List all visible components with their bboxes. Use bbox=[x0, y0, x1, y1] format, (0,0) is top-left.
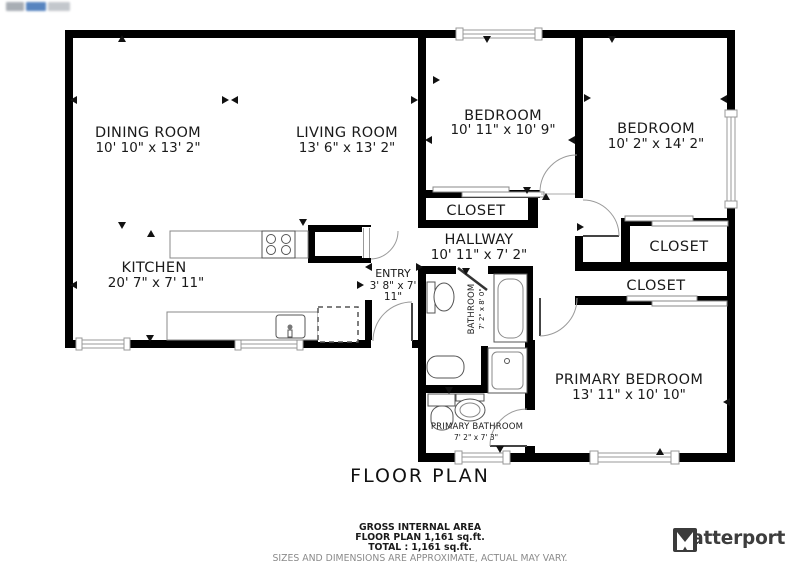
size-disclaimer: SIZES AND DIMENSIONS ARE APPROXIMATE, AC… bbox=[272, 554, 567, 564]
door-front-entry bbox=[373, 302, 412, 341]
door-pantry bbox=[371, 231, 398, 259]
wall-exterior-top bbox=[65, 30, 735, 38]
wall-bath-left bbox=[418, 266, 426, 340]
appliance-dashed bbox=[318, 307, 358, 342]
wall-shower-left bbox=[481, 346, 488, 393]
primary-bedroom-label: PRIMARY BEDROOM bbox=[555, 372, 703, 388]
wall-closet-bottom bbox=[418, 220, 538, 228]
pantry-inner bbox=[315, 232, 363, 256]
window-bedroom-top bbox=[456, 28, 542, 40]
door-bedroom-top bbox=[540, 155, 577, 194]
bedroom-right-label: BEDROOM bbox=[617, 121, 695, 137]
primary-toilet bbox=[455, 394, 485, 421]
door-bedroom-right bbox=[583, 200, 619, 236]
kitchen-sink bbox=[276, 315, 305, 338]
window-bedroom-right bbox=[725, 110, 737, 208]
window-primary-bathroom bbox=[455, 451, 510, 464]
primary-bedroom-dims: 13' 11" x 10' 10" bbox=[572, 387, 686, 403]
bedroom-top-dims: 10' 11" x 10' 9" bbox=[450, 122, 555, 138]
wall-bedroom-divider bbox=[575, 30, 583, 198]
bathroom-dims: 7' 2" x 8' 0" bbox=[478, 288, 486, 329]
bathtub bbox=[494, 274, 527, 342]
stove bbox=[262, 231, 295, 258]
wall-exterior-right bbox=[727, 30, 735, 462]
wall-mid-left bbox=[418, 340, 426, 462]
hallway-label: HALLWAY bbox=[445, 232, 514, 248]
window-kitchen-1 bbox=[76, 338, 130, 350]
wall-hallway-bottom-a bbox=[426, 266, 456, 274]
wall-living-bedroom bbox=[418, 30, 426, 228]
toilet bbox=[427, 282, 454, 313]
hall-closet-label: CLOSET bbox=[446, 203, 505, 219]
entry-label: ENTRY bbox=[375, 267, 411, 280]
window-primary-bedroom bbox=[590, 451, 679, 464]
total-area: TOTAL : 1,161 sq.ft. bbox=[272, 543, 567, 553]
dining-room-dims: 10' 10" x 13' 2" bbox=[95, 140, 200, 156]
living-room-label: LIVING ROOM bbox=[296, 125, 398, 141]
dining-room-label: DINING ROOM bbox=[95, 125, 201, 141]
pantry-doorway bbox=[362, 227, 371, 258]
wall-closets-divider bbox=[575, 262, 735, 271]
wall-bathrooms-divider bbox=[426, 385, 486, 393]
floor-plan-page: DINING ROOM 10' 10" x 13' 2" LIVING ROOM… bbox=[0, 0, 800, 566]
living-room-dims: 13' 6" x 13' 2" bbox=[299, 140, 396, 156]
footer: GROSS INTERNAL AREA FLOOR PLAN 1,161 sq.… bbox=[272, 523, 567, 564]
room-labels: DINING ROOM 10' 10" x 13' 2" LIVING ROOM… bbox=[95, 108, 709, 442]
bedroom-closet-label: CLOSET bbox=[649, 239, 708, 255]
kitchen-dims: 20' 7" x 7' 11" bbox=[108, 275, 205, 291]
wall-entry-left-stub bbox=[365, 300, 372, 348]
wall-closet1-left bbox=[621, 218, 630, 268]
front-door-gap bbox=[371, 340, 412, 348]
kitchen-label: KITCHEN bbox=[122, 260, 187, 276]
wall-primary-divider-stub bbox=[525, 446, 535, 462]
bathroom-label: BATHROOM bbox=[467, 284, 477, 335]
bedroom-right-dims: 10' 2" x 14' 2" bbox=[608, 136, 705, 152]
hallway-dims: 10' 11" x 7' 2" bbox=[431, 247, 528, 263]
bathroom-sink bbox=[427, 356, 464, 378]
matterport-icon bbox=[673, 528, 697, 552]
matterport-logo: Matterport bbox=[673, 528, 785, 549]
primary-closet-label: CLOSET bbox=[626, 278, 685, 294]
entry-dims-2: 11" bbox=[384, 291, 402, 303]
door-primary-bedroom bbox=[540, 298, 577, 336]
plan-title: FLOOR PLAN bbox=[350, 465, 490, 487]
shower bbox=[488, 348, 527, 393]
primary-bathroom-dims: 7' 2" x 7' 3" bbox=[454, 433, 498, 442]
primary-bathroom-label: PRIMARY BATHROOM bbox=[431, 422, 523, 432]
wall-exterior-left bbox=[65, 30, 73, 348]
